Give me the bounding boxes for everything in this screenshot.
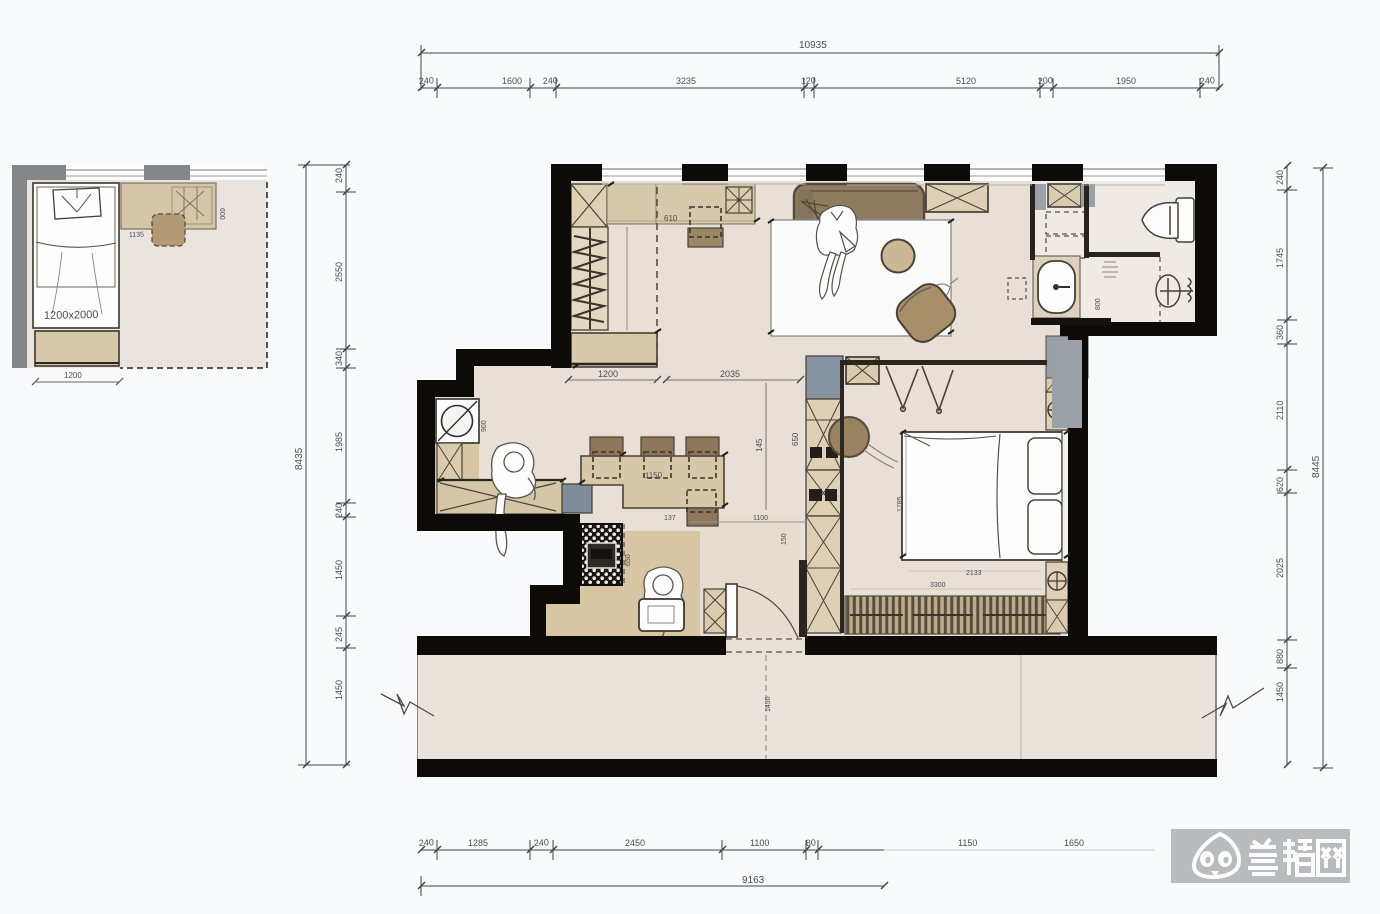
svg-text:1135: 1135: [129, 231, 144, 239]
svg-text:2035: 2035: [720, 369, 740, 379]
svg-text:240: 240: [534, 837, 550, 848]
svg-text:620: 620: [1275, 477, 1285, 492]
svg-text:1285: 1285: [468, 838, 488, 848]
svg-text:240: 240: [419, 837, 435, 848]
svg-text:1200: 1200: [64, 371, 82, 380]
svg-text:880: 880: [1275, 649, 1285, 664]
svg-text:1150: 1150: [958, 838, 977, 848]
svg-text:2133: 2133: [966, 570, 982, 577]
svg-text:240: 240: [419, 75, 435, 86]
svg-text:650: 650: [791, 432, 800, 446]
svg-text:1600: 1600: [502, 76, 522, 86]
svg-text:1450: 1450: [334, 680, 344, 700]
svg-text:2110: 2110: [1275, 401, 1285, 420]
svg-text:245: 245: [334, 627, 344, 642]
svg-text:1100: 1100: [750, 838, 769, 848]
svg-text:5120: 5120: [956, 76, 976, 86]
svg-text:2025: 2025: [1275, 558, 1285, 578]
svg-text:240: 240: [334, 503, 344, 518]
svg-text:1785: 1785: [897, 496, 904, 512]
svg-text:1450: 1450: [334, 560, 344, 580]
svg-text:1200: 1200: [598, 369, 618, 379]
svg-text:3235: 3235: [676, 76, 696, 86]
svg-text:240: 240: [1200, 75, 1216, 86]
svg-text:2550: 2550: [334, 262, 344, 282]
svg-text:8435: 8435: [294, 447, 305, 470]
svg-text:80: 80: [806, 837, 817, 848]
svg-text:1100: 1100: [753, 515, 768, 522]
svg-text:650: 650: [625, 554, 632, 566]
svg-text:1450: 1450: [765, 696, 772, 712]
svg-text:600: 600: [218, 208, 225, 220]
svg-text:1650: 1650: [1064, 838, 1084, 848]
svg-text:610: 610: [664, 214, 678, 223]
svg-text:1985: 1985: [334, 432, 344, 452]
svg-text:137: 137: [664, 515, 676, 522]
svg-text:10935: 10935: [799, 40, 827, 51]
svg-text:9163: 9163: [742, 875, 765, 886]
svg-text:145: 145: [755, 438, 764, 452]
svg-text:340: 340: [334, 351, 344, 366]
svg-text:1450: 1450: [1275, 682, 1285, 702]
svg-text:1200x2000: 1200x2000: [44, 309, 99, 322]
svg-text:1745: 1745: [1275, 248, 1285, 268]
svg-text:120: 120: [801, 75, 817, 86]
svg-text:240: 240: [1275, 170, 1285, 185]
svg-text:8445: 8445: [1311, 455, 1322, 478]
svg-text:150: 150: [781, 533, 788, 545]
svg-text:800: 800: [1095, 298, 1102, 310]
svg-text:1950: 1950: [1116, 76, 1136, 86]
svg-text:900: 900: [481, 420, 488, 432]
svg-text:3300: 3300: [930, 582, 946, 589]
svg-text:2450: 2450: [625, 838, 645, 848]
svg-text:360: 360: [1275, 325, 1285, 340]
svg-text:200: 200: [1038, 75, 1054, 86]
svg-text:1150: 1150: [645, 470, 663, 480]
svg-text:240: 240: [334, 168, 344, 183]
svg-text:240: 240: [543, 75, 559, 86]
